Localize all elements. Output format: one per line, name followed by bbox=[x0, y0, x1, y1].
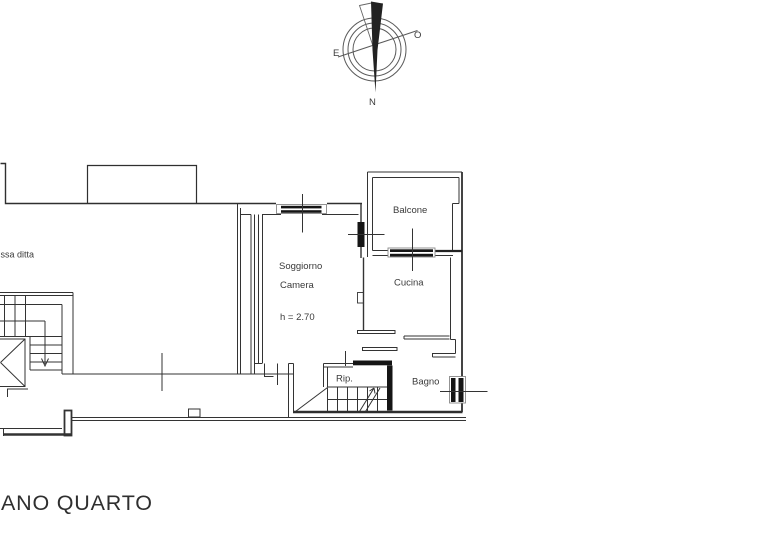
window-soggiorno bbox=[277, 194, 327, 233]
stairwell-lower-wall bbox=[8, 389, 29, 397]
compass-rose: E O N bbox=[333, 2, 421, 109]
wall-niche bbox=[358, 293, 364, 304]
rooflight-outline bbox=[88, 166, 197, 204]
window-sash-icon bbox=[281, 206, 322, 209]
room-labels: ssa ditta Balcone Soggiorno Camera h = 2… bbox=[1, 205, 440, 388]
room-label-balcone: Balcone bbox=[393, 205, 427, 216]
window-sash-icon bbox=[451, 378, 456, 402]
balcony-pillar bbox=[65, 411, 72, 436]
party-walls bbox=[238, 204, 359, 417]
stair-hall-west-wall bbox=[289, 364, 294, 418]
internal-staircase bbox=[296, 388, 388, 412]
corridor-north-wall bbox=[363, 347, 398, 351]
room-label-cucina: Cucina bbox=[394, 278, 424, 289]
floor-plan-drawing: E O N bbox=[0, 0, 779, 559]
room-label-camera: Camera bbox=[280, 280, 315, 291]
room-label-bagno: Bagno bbox=[412, 377, 439, 388]
window-sash-icon bbox=[281, 210, 322, 213]
rip-thick-wall-top bbox=[353, 361, 392, 366]
soggiorno-west-wall bbox=[255, 215, 263, 364]
plan-title: ANO QUARTO bbox=[1, 491, 153, 515]
room-label-soggiorno: Soggiorno bbox=[279, 261, 322, 272]
window-sash-icon bbox=[459, 378, 464, 402]
compass-label-north: N bbox=[369, 97, 376, 108]
cucina-east-inner-wall bbox=[451, 258, 456, 354]
rip-walls bbox=[324, 364, 388, 388]
soggiorno-sw-jog bbox=[265, 364, 274, 377]
floor-plan-page: E O N bbox=[0, 0, 779, 559]
north-wall bbox=[1, 164, 363, 204]
stair-cut-line bbox=[296, 388, 328, 412]
room-height-note: h = 2.70 bbox=[280, 312, 315, 323]
rail-post bbox=[189, 409, 201, 417]
room-label-rip: Rip. bbox=[336, 374, 353, 385]
balcony-rail-lines bbox=[72, 418, 466, 421]
cucina-north-wall bbox=[373, 229, 463, 272]
elevator-shaft-icon bbox=[0, 339, 25, 387]
cucina-walls bbox=[358, 258, 456, 354]
bagno-north-wall bbox=[433, 353, 456, 357]
communal-stairwell bbox=[0, 293, 293, 398]
wall-left-segment bbox=[373, 251, 389, 256]
window-bagno bbox=[440, 377, 488, 404]
window-sash-icon bbox=[390, 249, 433, 252]
cucina-south-wall-right bbox=[404, 336, 450, 339]
compass-needle-icon bbox=[371, 2, 383, 93]
compass-label-east: E bbox=[333, 48, 339, 59]
rip-thick-wall-east bbox=[387, 366, 393, 411]
window-sash-icon bbox=[390, 254, 433, 257]
stair-treads bbox=[0, 293, 73, 375]
adjacent-property-label: ssa ditta bbox=[1, 250, 35, 260]
stair-direction-arrow-icon bbox=[42, 321, 49, 366]
cucina-south-wall-left bbox=[358, 330, 396, 334]
shaft-walls bbox=[238, 204, 255, 374]
compass-label-west: O bbox=[414, 30, 421, 41]
french-door-balcone bbox=[348, 204, 385, 259]
